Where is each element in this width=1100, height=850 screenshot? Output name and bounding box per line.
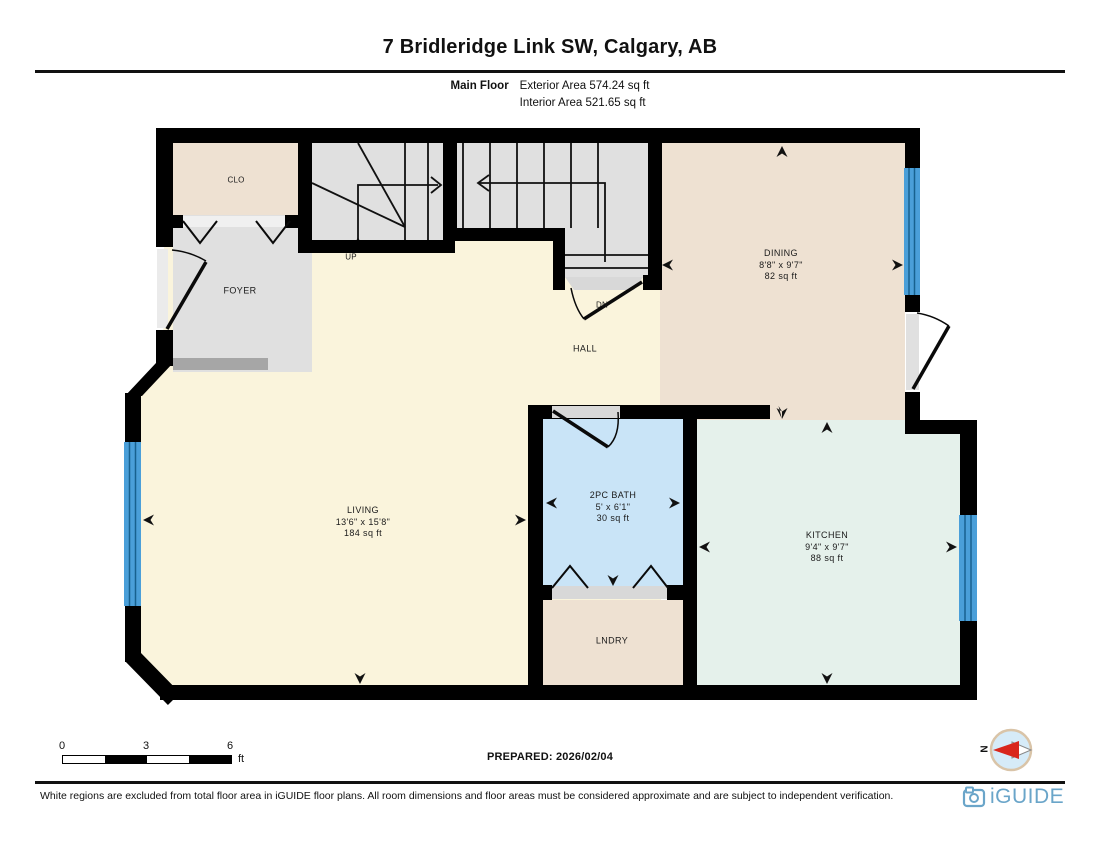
disclaimer-text: White regions are excluded from total fl… (40, 790, 893, 802)
room-label-living: LIVING 13'6" x 15'8" 184 sq ft (336, 505, 391, 540)
prepared-date: PREPARED: 2026/02/04 (0, 751, 1100, 763)
compass-north-label: N (980, 745, 991, 752)
dining-window (904, 168, 920, 295)
room-dims: 5' x 6'1" (590, 501, 637, 513)
stairs-up-label: UP (345, 251, 357, 263)
floorplan-page: 7 Bridleridge Link SW, Calgary, AB Main … (0, 0, 1100, 850)
room-label-foyer: FOYER (223, 285, 256, 297)
room-label-bath: 2PC BATH 5' x 6'1" 30 sq ft (590, 490, 637, 525)
entry-step (173, 358, 268, 370)
room-label-dining: DINING 8'8" x 9'7" 82 sq ft (759, 248, 803, 283)
stairs-down-lower-floor (565, 143, 648, 277)
footer-divider (35, 781, 1065, 784)
living-window (124, 442, 141, 606)
room-name: LIVING (336, 505, 391, 517)
room-name: DINING (759, 248, 803, 260)
room-dims: 13'6" x 15'8" (336, 516, 391, 528)
room-area: 88 sq ft (805, 553, 849, 565)
compass (991, 730, 1031, 770)
stairs-down-label: DN (596, 299, 608, 311)
room-dims: 8'8" x 9'7" (759, 259, 803, 271)
room-label-kitchen: KITCHEN 9'4" x 9'7" 88 sq ft (805, 530, 849, 565)
kitchen-window (959, 515, 977, 621)
room-label-laundry: LNDRY (596, 635, 628, 647)
iguide-logo: iGUIDE (962, 785, 1064, 809)
room-area: 82 sq ft (759, 271, 803, 283)
room-dims: 9'4" x 9'7" (805, 541, 849, 553)
room-label-closet: CLO (227, 174, 244, 186)
room-name: KITCHEN (805, 530, 849, 542)
iguide-camera-icon (962, 786, 986, 808)
iguide-logo-text: iGUIDE (990, 785, 1064, 809)
floorplan-drawing (0, 0, 1100, 850)
room-name: 2PC BATH (590, 490, 637, 502)
room-area: 184 sq ft (336, 528, 391, 540)
room-label-hall: HALL (573, 343, 597, 355)
room-area: 30 sq ft (590, 513, 637, 525)
